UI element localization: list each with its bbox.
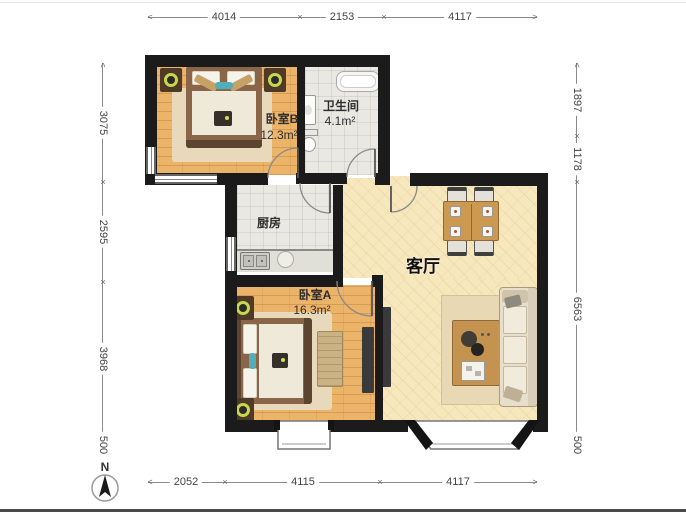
dim-tick-icon: × bbox=[571, 133, 582, 138]
bedroomB-window-left bbox=[146, 147, 156, 174]
bedroomA-bed bbox=[234, 318, 312, 404]
wall bbox=[537, 173, 548, 432]
bedroomA-label: 卧室A bbox=[299, 286, 332, 303]
bathroom-label: 卫生间 bbox=[323, 97, 359, 114]
dim-tick-icon: × bbox=[297, 12, 302, 23]
dim-value: 6563 bbox=[570, 293, 583, 325]
dining-chair bbox=[474, 240, 494, 256]
entry-floor bbox=[388, 176, 412, 186]
bedroomB-window-bottom bbox=[155, 174, 217, 184]
dim-line-left: < × × × > 3075 2595 3968 500 bbox=[96, 63, 109, 455]
kitchen-label: 厨房 bbox=[257, 214, 281, 231]
top-divider bbox=[0, 2, 686, 3]
dining-chair bbox=[447, 240, 467, 256]
compass-north-label: N bbox=[101, 460, 110, 474]
wall bbox=[333, 185, 343, 287]
wall bbox=[533, 420, 548, 432]
dim-tick-icon: × bbox=[377, 477, 382, 488]
sofa bbox=[499, 287, 538, 407]
bedroomA-bay-window bbox=[278, 421, 330, 449]
dim-tick-icon: × bbox=[97, 279, 108, 284]
bedroomA-area: 16.3m² bbox=[293, 303, 330, 317]
bedroomB-bed bbox=[186, 66, 262, 148]
dim-line-right: < × × × > 1897 1178 6563 500 bbox=[570, 63, 583, 455]
lamp-icon bbox=[164, 73, 178, 87]
wall bbox=[225, 185, 237, 432]
dim-arrow-icon: < bbox=[147, 477, 152, 488]
dim-value: 2052 bbox=[170, 476, 202, 489]
living-floor-1 bbox=[340, 178, 540, 278]
dim-value: 4014 bbox=[208, 11, 240, 24]
wall bbox=[328, 420, 408, 432]
bedroomB-nightstand-right bbox=[264, 68, 286, 92]
compass-needle-icon bbox=[99, 475, 111, 497]
dim-arrow-icon: > bbox=[532, 477, 537, 488]
dim-value: 500 bbox=[570, 432, 583, 458]
living-bay-window bbox=[409, 421, 535, 449]
kitchen-window bbox=[226, 237, 236, 271]
kitchen-round-table bbox=[277, 251, 294, 268]
bathroom-area: 4.1m² bbox=[325, 114, 356, 128]
dim-tick-icon: × bbox=[571, 179, 582, 184]
dim-value: 4117 bbox=[442, 476, 474, 489]
bedroomB-label: 卧室B bbox=[266, 110, 299, 127]
wall bbox=[375, 287, 383, 432]
lamp-icon bbox=[268, 73, 282, 87]
dining-table bbox=[443, 201, 499, 241]
dim-arrow-icon: < bbox=[147, 12, 152, 23]
dim-value: 4117 bbox=[444, 11, 476, 24]
kitchen-sink bbox=[240, 252, 270, 270]
wall bbox=[410, 173, 548, 186]
dim-value: 4115 bbox=[287, 476, 319, 489]
lamp-icon bbox=[236, 403, 250, 417]
compass-icon bbox=[92, 475, 118, 501]
dim-value: 1178 bbox=[570, 143, 583, 175]
wall bbox=[372, 275, 383, 287]
dim-value: 2153 bbox=[326, 11, 358, 24]
dim-tick-icon: × bbox=[381, 12, 386, 23]
dim-arrow-icon: < bbox=[97, 62, 108, 67]
bedroomA-tv bbox=[362, 327, 374, 393]
floor-plan: 卧室B 12.3m² 卫生间 4.1m² 厨房 客厅 卧室A 16.3m² N … bbox=[0, 0, 686, 512]
dim-value: 1897 bbox=[570, 84, 583, 116]
bathtub bbox=[336, 71, 380, 92]
dim-value: 3075 bbox=[96, 107, 109, 139]
dim-line-bottom: < × × > 2052 4115 4117 bbox=[148, 476, 537, 489]
dim-value: 500 bbox=[96, 432, 109, 458]
wall bbox=[375, 173, 390, 185]
wall bbox=[225, 420, 280, 432]
dim-value: 2595 bbox=[96, 216, 109, 248]
lamp-icon bbox=[236, 301, 250, 315]
dim-value: 3968 bbox=[96, 343, 109, 375]
wall bbox=[145, 55, 390, 67]
dim-tick-icon: × bbox=[97, 179, 108, 184]
bedroomB-area: 12.3m² bbox=[260, 128, 297, 142]
coffee-table bbox=[452, 320, 500, 386]
dim-line-top: < × × > 4014 2153 4117 bbox=[148, 11, 537, 24]
wall bbox=[296, 173, 347, 184]
dim-tick-icon: × bbox=[222, 477, 227, 488]
dim-arrow-icon: > bbox=[532, 12, 537, 23]
bedroomA-bench bbox=[317, 331, 343, 387]
bedroomB-nightstand-left bbox=[160, 68, 182, 92]
wall bbox=[378, 55, 390, 185]
living-label: 客厅 bbox=[406, 252, 440, 277]
dim-arrow-icon: < bbox=[571, 62, 582, 67]
